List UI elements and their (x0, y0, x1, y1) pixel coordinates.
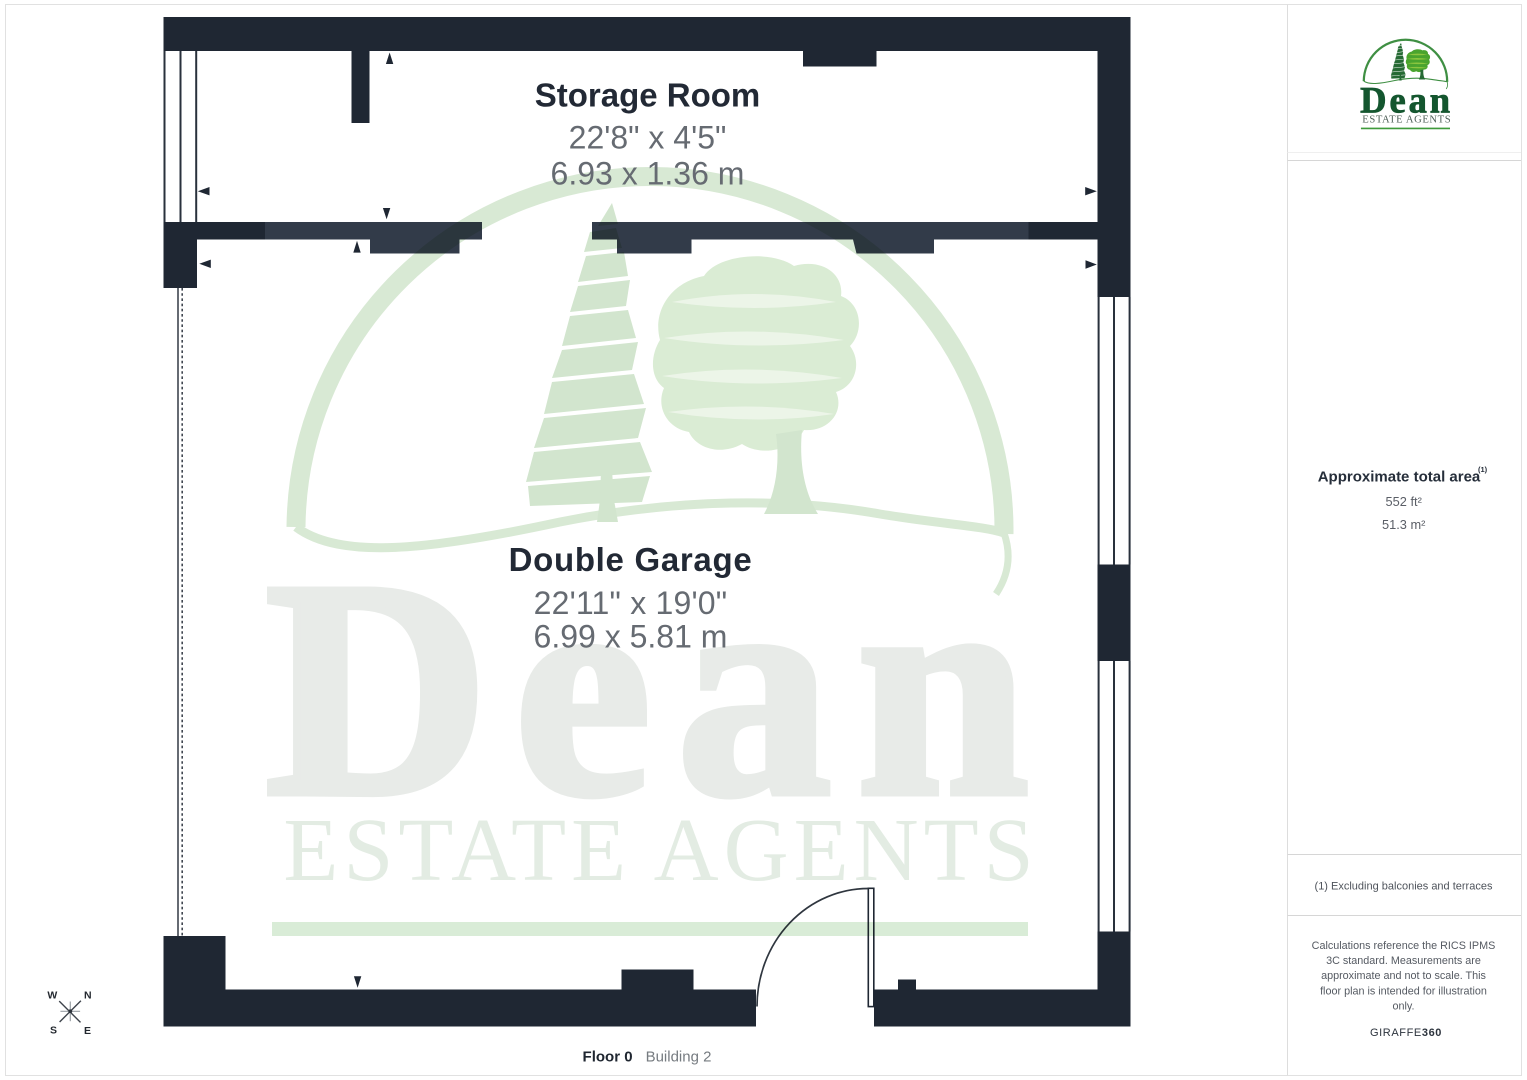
svg-text:GIRAFFE360: GIRAFFE360 (1370, 1027, 1442, 1039)
svg-text:Approximate total area: Approximate total area (1318, 469, 1481, 486)
svg-text:3C standard. Measurements are: 3C standard. Measurements are (1326, 955, 1481, 967)
svg-text:(1) Excluding balconies and te: (1) Excluding balconies and terraces (1315, 881, 1493, 893)
svg-text:N: N (84, 990, 92, 1002)
svg-text:552 ft²: 552 ft² (1386, 494, 1423, 509)
svg-text:floor plan is intended for ill: floor plan is intended for illustration (1320, 985, 1487, 997)
svg-text:51.3 m²: 51.3 m² (1382, 517, 1426, 532)
svg-text:6.99 x 5.81 m: 6.99 x 5.81 m (534, 619, 728, 655)
svg-text:Floor 0Building 2: Floor 0Building 2 (583, 1049, 712, 1066)
svg-text:22'8" x 4'5": 22'8" x 4'5" (569, 119, 727, 155)
svg-text:Storage Room: Storage Room (535, 76, 761, 113)
svg-text:S: S (50, 1025, 57, 1037)
svg-text:(1): (1) (1478, 465, 1488, 474)
svg-text:6.93 x 1.36 m: 6.93 x 1.36 m (551, 156, 745, 192)
svg-text:22'11" x 19'0": 22'11" x 19'0" (534, 585, 728, 621)
svg-text:W: W (47, 990, 57, 1002)
svg-text:approximate and not to scale.: approximate and not to scale. This (1321, 970, 1486, 982)
svg-text:Double Garage: Double Garage (509, 541, 753, 578)
svg-text:only.: only. (1392, 1000, 1414, 1012)
svg-text:E: E (84, 1025, 91, 1037)
svg-text:Calculations reference the RIC: Calculations reference the RICS IPMS (1312, 940, 1496, 952)
